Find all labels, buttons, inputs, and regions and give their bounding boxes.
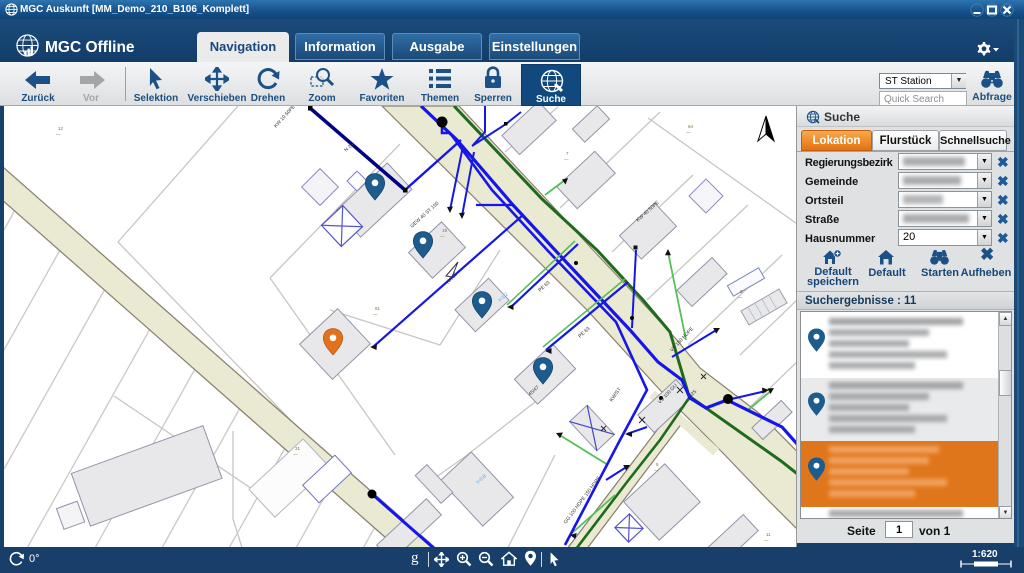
svg-text:12: 12: [58, 126, 64, 131]
svg-text:PE 63: PE 63: [537, 280, 551, 294]
svg-text:—: —: [738, 295, 743, 300]
svg-text:PE 63: PE 63: [577, 326, 591, 340]
svg-text:—: —: [564, 157, 569, 162]
svg-text:—: —: [654, 468, 659, 473]
svg-text:—: —: [373, 312, 378, 317]
svg-text:GEW 40 ST 150: GEW 40 ST 150: [409, 201, 440, 230]
svg-text:—: —: [440, 234, 445, 239]
svg-text:31: 31: [295, 446, 301, 451]
svg-text:19: 19: [442, 228, 448, 233]
svg-text:—: —: [293, 452, 298, 457]
svg-text:—: —: [56, 132, 61, 137]
svg-text:81: 81: [375, 306, 381, 311]
svg-text:—: —: [764, 538, 769, 543]
svg-text:7: 7: [566, 151, 569, 156]
svg-text:5: 5: [656, 462, 659, 467]
svg-text:KW 10 50PE: KW 10 50PE: [273, 106, 297, 129]
svg-text:KW/ST: KW/ST: [609, 387, 623, 403]
svg-text:11: 11: [766, 532, 771, 537]
svg-text:—: —: [686, 130, 691, 135]
svg-text:64: 64: [688, 124, 694, 129]
